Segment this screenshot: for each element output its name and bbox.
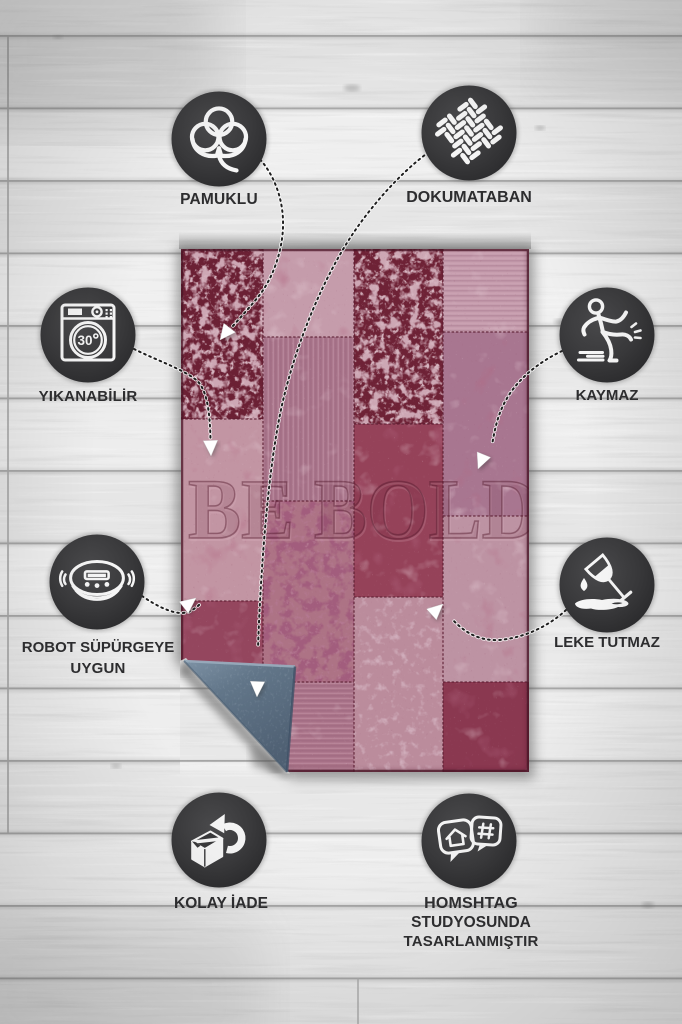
svg-text:UYGUN: UYGUN bbox=[70, 660, 125, 677]
svg-text:YIKANABİLİR: YIKANABİLİR bbox=[39, 388, 138, 405]
svg-text:ROBOT SÜPÜRGEYE: ROBOT SÜPÜRGEYE bbox=[22, 639, 175, 656]
svg-text:KOLAY İADE: KOLAY İADE bbox=[174, 895, 268, 912]
svg-text:PAMUKLU: PAMUKLU bbox=[180, 191, 258, 208]
svg-text:TASARLANMIŞTIR: TASARLANMIŞTIR bbox=[403, 933, 538, 950]
svg-text:STUDYOSUNDA: STUDYOSUNDA bbox=[411, 914, 531, 931]
svg-text:HOMSHTAG: HOMSHTAG bbox=[424, 895, 518, 912]
svg-text:LEKE TUTMAZ: LEKE TUTMAZ bbox=[554, 634, 660, 651]
svg-text:KAYMAZ: KAYMAZ bbox=[576, 387, 639, 404]
svg-text:DOKUMATABAN: DOKUMATABAN bbox=[406, 189, 532, 206]
